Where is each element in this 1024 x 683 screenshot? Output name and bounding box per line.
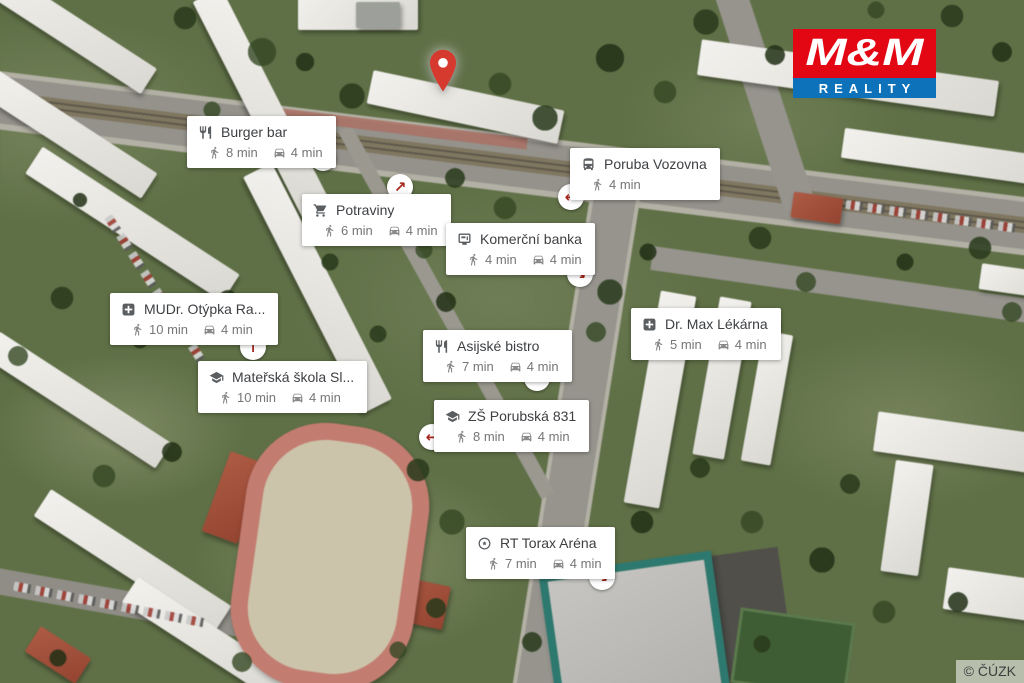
drive-minutes: 4 min — [550, 252, 582, 267]
drive-minutes: 4 min — [291, 145, 323, 160]
drive-time: 4 min — [717, 337, 767, 352]
poi-card-dr-max-lekarna[interactable]: Dr. Max Lékárna 5 min 4 min — [631, 308, 781, 360]
poi-title: MUDr. Otýpka Ra... — [144, 301, 265, 317]
walk-time: 7 min — [444, 359, 494, 374]
medical-icon — [121, 302, 136, 317]
map-canvas[interactable]: ↘↗←↘↑→↘←↘ Burger bar 8 min 4 min Poruba … — [0, 0, 1024, 683]
poi-title: Potraviny — [336, 202, 394, 218]
walk-minutes: 8 min — [473, 429, 505, 444]
restaurant-icon — [434, 339, 449, 354]
walk-icon — [444, 360, 457, 373]
poi-card-burger-bar[interactable]: Burger bar 8 min 4 min — [187, 116, 336, 168]
walk-icon — [219, 391, 232, 404]
walk-icon — [487, 557, 500, 570]
poi-card-rt-torax-arena[interactable]: RT Torax Aréna 7 min 4 min — [466, 527, 615, 579]
restaurant-icon — [198, 125, 213, 140]
poi-card-materska-skola[interactable]: Mateřská škola Sl... 10 min 4 min — [198, 361, 367, 413]
car-icon — [509, 360, 522, 373]
walk-icon — [455, 430, 468, 443]
drive-time: 4 min — [520, 429, 570, 444]
walk-icon — [467, 253, 480, 266]
map-attribution: © ČÚZK — [956, 660, 1024, 683]
car-icon — [388, 224, 401, 237]
drive-minutes: 4 min — [221, 322, 253, 337]
poi-title: Poruba Vozovna — [604, 156, 707, 172]
walk-time: 8 min — [208, 145, 258, 160]
poi-card-mudr-otypka[interactable]: MUDr. Otýpka Ra... 10 min 4 min — [110, 293, 278, 345]
school-icon — [445, 409, 460, 424]
walk-minutes: 7 min — [462, 359, 494, 374]
drive-time: 4 min — [291, 390, 341, 405]
poi-title: Komerční banka — [480, 231, 582, 247]
walk-icon — [591, 178, 604, 191]
poi-card-asijske-bistro[interactable]: Asijské bistro 7 min 4 min — [423, 330, 572, 382]
walk-time: 5 min — [652, 337, 702, 352]
car-icon — [552, 557, 565, 570]
poi-title: RT Torax Aréna — [500, 535, 597, 551]
poi-card-zs-porubska[interactable]: ZŠ Porubská 831 8 min 4 min — [434, 400, 589, 452]
walk-minutes: 4 min — [485, 252, 517, 267]
walk-minutes: 10 min — [237, 390, 276, 405]
drive-time: 4 min — [203, 322, 253, 337]
poi-title: Asijské bistro — [457, 338, 539, 354]
car-icon — [520, 430, 533, 443]
walk-time: 6 min — [323, 223, 373, 238]
poi-card-komercni-banka[interactable]: Komerční banka 4 min 4 min — [446, 223, 595, 275]
walk-time: 7 min — [487, 556, 537, 571]
car-icon — [291, 391, 304, 404]
bus-icon — [581, 157, 596, 172]
drive-minutes: 4 min — [538, 429, 570, 444]
walk-time: 4 min — [591, 177, 641, 192]
drive-minutes: 4 min — [406, 223, 438, 238]
walk-time: 8 min — [455, 429, 505, 444]
walk-icon — [652, 338, 665, 351]
poi-card-potraviny[interactable]: Potraviny 6 min 4 min — [302, 194, 451, 246]
car-icon — [532, 253, 545, 266]
walk-minutes: 7 min — [505, 556, 537, 571]
school-icon — [209, 370, 224, 385]
walk-minutes: 4 min — [609, 177, 641, 192]
drive-time: 4 min — [388, 223, 438, 238]
walk-minutes: 5 min — [670, 337, 702, 352]
walk-time: 4 min — [467, 252, 517, 267]
car-icon — [273, 146, 286, 159]
walk-icon — [131, 323, 144, 336]
drive-time: 4 min — [552, 556, 602, 571]
walk-time: 10 min — [131, 322, 188, 337]
drive-minutes: 4 min — [735, 337, 767, 352]
drive-time: 4 min — [273, 145, 323, 160]
logo-top: M&M — [793, 29, 936, 78]
poi-title: Mateřská škola Sl... — [232, 369, 354, 385]
property-location-pin[interactable] — [426, 47, 460, 95]
car-icon — [203, 323, 216, 336]
walk-minutes: 6 min — [341, 223, 373, 238]
drive-minutes: 4 min — [527, 359, 559, 374]
stadium-icon — [477, 536, 492, 551]
cart-icon — [313, 203, 328, 218]
walk-time: 10 min — [219, 390, 276, 405]
drive-time: 4 min — [532, 252, 582, 267]
mm-reality-logo: M&M REALITY — [793, 29, 936, 98]
walk-icon — [323, 224, 336, 237]
logo-bottom: REALITY — [793, 78, 936, 98]
walk-icon — [208, 146, 221, 159]
poi-title: Dr. Max Lékárna — [665, 316, 768, 332]
drive-time: 4 min — [509, 359, 559, 374]
drive-minutes: 4 min — [570, 556, 602, 571]
poi-title: Burger bar — [221, 124, 287, 140]
poi-card-poruba-vozovna[interactable]: Poruba Vozovna 4 min — [570, 148, 720, 200]
medical-icon — [642, 317, 657, 332]
walk-minutes: 8 min — [226, 145, 258, 160]
drive-minutes: 4 min — [309, 390, 341, 405]
atm-icon — [457, 232, 472, 247]
walk-minutes: 10 min — [149, 322, 188, 337]
car-icon — [717, 338, 730, 351]
poi-title: ZŠ Porubská 831 — [468, 408, 576, 424]
